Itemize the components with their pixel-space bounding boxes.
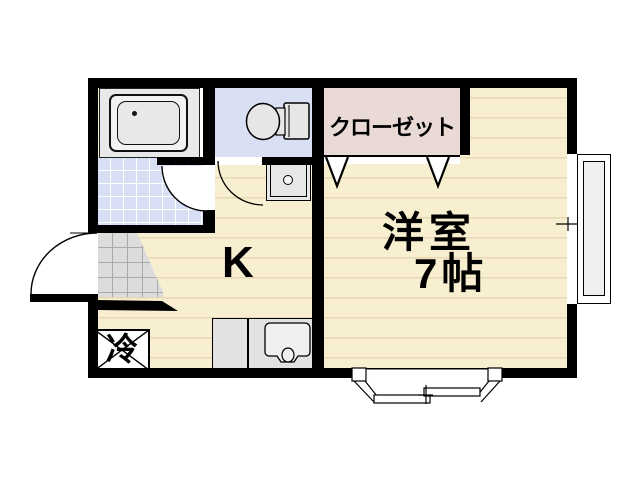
wall-closet-right <box>460 88 470 155</box>
closet-label: クローゼット <box>324 117 460 139</box>
toilet-door-opening <box>215 157 262 165</box>
entrance-door-icon <box>30 233 98 302</box>
wall-right-upper <box>567 78 577 153</box>
wall-washroom-bottom <box>88 225 215 233</box>
closet-front-line <box>324 155 460 164</box>
counter-divider <box>247 319 249 369</box>
wall-washroom-door-head <box>157 157 215 165</box>
wall-right-lower <box>567 305 577 378</box>
bay-window-latch-icon <box>418 385 433 404</box>
refrigerator-label: 冷 <box>94 333 150 365</box>
wall-top <box>88 78 577 88</box>
wall-toilet-bottom <box>262 157 312 165</box>
bathtub-drain-icon <box>132 111 137 116</box>
bathtub-inner <box>117 101 180 145</box>
wall-bottom-right <box>502 368 567 378</box>
wall-bottom-left <box>88 368 353 378</box>
washing-machine-pan-icon <box>266 160 311 201</box>
kitchen-label: K <box>222 241 254 285</box>
side-window-opening <box>567 153 577 305</box>
wall-closet-left <box>312 88 324 157</box>
wall-kitchen-room-divider <box>312 157 324 368</box>
pan-drain-icon <box>283 175 293 185</box>
bay-window-icon <box>352 368 502 404</box>
wall-left-upper <box>88 78 98 233</box>
western-room-label: 洋室 <box>382 212 476 254</box>
kitchen-counter <box>212 318 313 370</box>
washroom-door-opening <box>203 165 215 210</box>
washroom-tiled-floor <box>98 158 203 227</box>
wall-washroom-toilet <box>203 88 215 157</box>
side-window-pane <box>583 161 605 296</box>
floor-plan: クローゼット 洋室 7帖 K 冷 <box>0 0 640 480</box>
toilet-room-floor <box>215 88 312 157</box>
western-room-size-label: 7帖 <box>414 253 487 295</box>
